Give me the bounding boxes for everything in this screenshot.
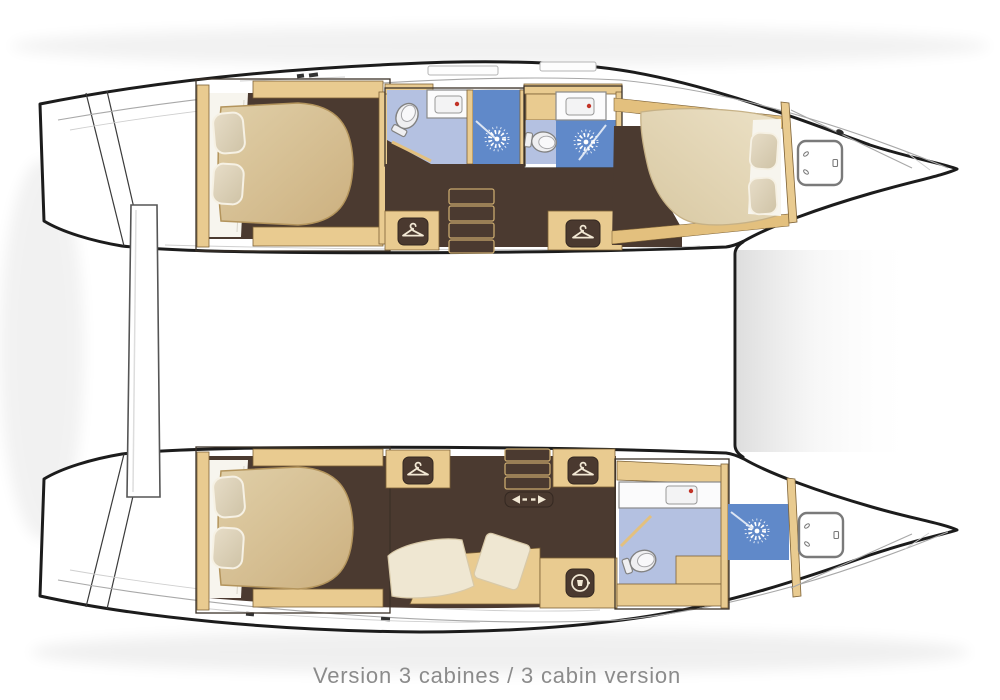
pillow bbox=[749, 132, 778, 170]
pillow bbox=[748, 177, 777, 215]
deck-hatch-icon bbox=[540, 62, 596, 71]
sliding-door-indicator bbox=[505, 492, 553, 507]
sink-icon bbox=[619, 482, 721, 508]
port-hull bbox=[40, 62, 957, 253]
deck-hatch-icon bbox=[798, 141, 842, 185]
owner-wardrobe bbox=[386, 450, 450, 488]
pillow bbox=[212, 476, 245, 518]
aft-davit-post bbox=[127, 205, 160, 497]
floor-plan-svg: Version 3 cabines / 3 cabin version bbox=[0, 0, 1000, 700]
port-aft-guest-cabin bbox=[196, 79, 390, 251]
deck-hatch-icon bbox=[428, 66, 498, 75]
sink-icon bbox=[427, 90, 470, 118]
pillow bbox=[212, 112, 245, 154]
catamaran-floor-plan: Version 3 cabines / 3 cabin version bbox=[0, 0, 1000, 700]
owner-hanging-locker bbox=[553, 449, 615, 487]
starboard-hull bbox=[40, 447, 957, 632]
chaise-cushion bbox=[388, 539, 474, 598]
sink-icon bbox=[556, 92, 606, 120]
port-companionway-steps bbox=[449, 189, 494, 253]
deck-hatch-icon bbox=[799, 513, 843, 557]
port-fwd-wardrobe bbox=[548, 211, 622, 250]
port-fwd-shower bbox=[556, 120, 618, 168]
pillow bbox=[212, 163, 245, 205]
port-aft-shower bbox=[473, 90, 522, 164]
port-aft-head bbox=[385, 84, 525, 166]
pillow bbox=[212, 527, 245, 569]
port-aft-wardrobe bbox=[385, 211, 439, 250]
washing-machine-cabinet bbox=[540, 558, 617, 608]
bridgedeck-shading bbox=[737, 250, 962, 452]
caption: Version 3 cabines / 3 cabin version bbox=[313, 663, 681, 688]
owner-head bbox=[615, 459, 729, 609]
owner-companionway-steps bbox=[505, 449, 550, 489]
